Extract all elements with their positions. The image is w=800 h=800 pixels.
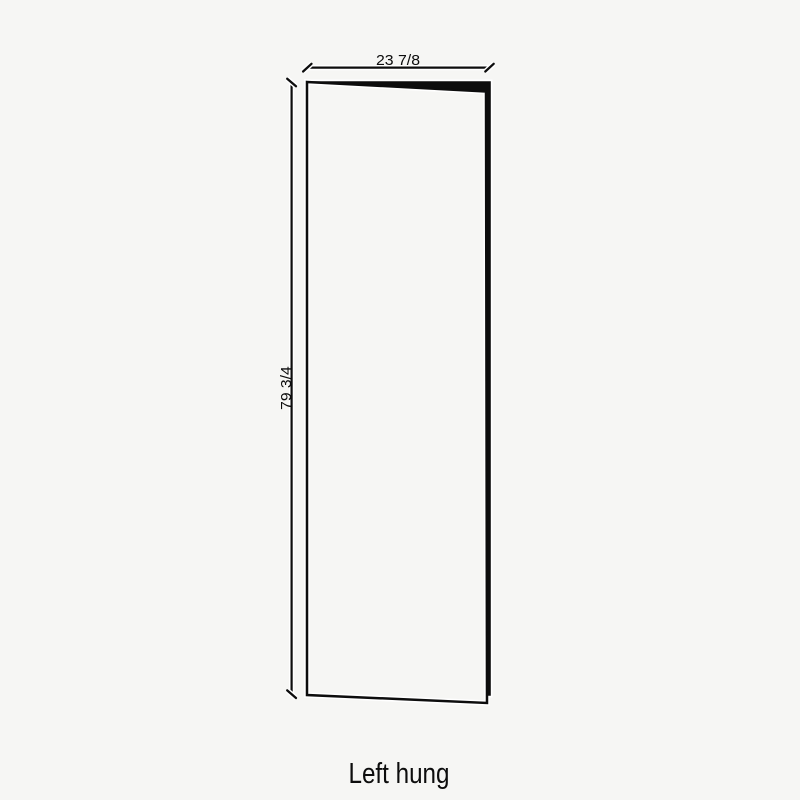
svg-text:23 7/8: 23 7/8 <box>376 52 420 69</box>
svg-text:79 3/4: 79 3/4 <box>278 366 295 410</box>
svg-text:Left hung: Left hung <box>349 758 450 790</box>
